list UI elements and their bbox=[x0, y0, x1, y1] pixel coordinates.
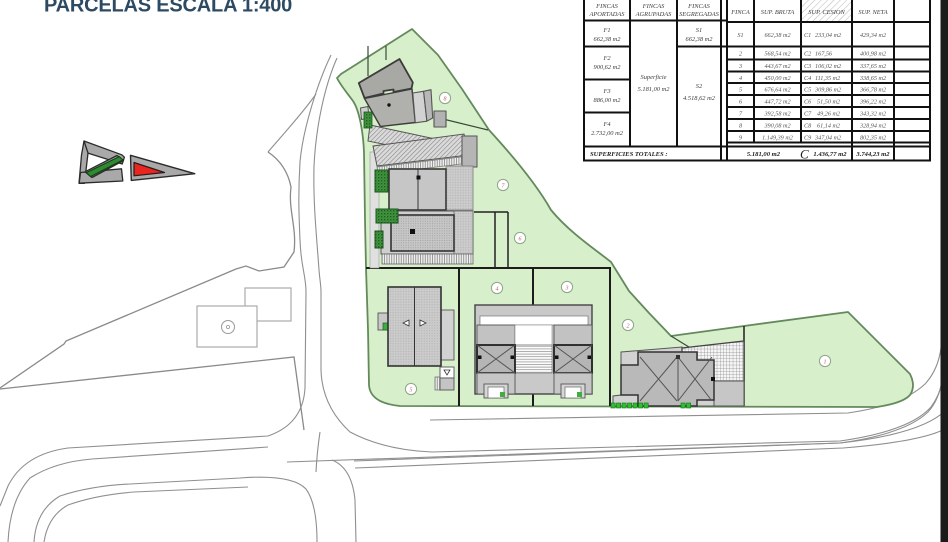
svg-text:337,65 m2: 337,65 m2 bbox=[859, 63, 886, 70]
svg-text:347,04 m2: 347,04 m2 bbox=[814, 135, 841, 142]
svg-text:106,02 m2: 106,02 m2 bbox=[815, 63, 841, 70]
svg-text:S1: S1 bbox=[696, 27, 702, 34]
svg-text:4.518,62 m2: 4.518,62 m2 bbox=[683, 95, 716, 102]
svg-text:C2: C2 bbox=[804, 51, 811, 58]
svg-text:568,54 m2: 568,54 m2 bbox=[764, 51, 790, 58]
svg-text:1.436,77 m2: 1.436,77 m2 bbox=[813, 151, 847, 158]
svg-text:9: 9 bbox=[739, 135, 742, 142]
svg-text:5: 5 bbox=[410, 388, 413, 394]
svg-text:FINCA: FINCA bbox=[730, 9, 750, 16]
svg-text:C7: C7 bbox=[804, 111, 812, 118]
svg-text:AGRUPADAS: AGRUPADAS bbox=[635, 11, 673, 18]
svg-text:FINCAS: FINCAS bbox=[595, 3, 618, 10]
svg-text:443,67 m2: 443,67 m2 bbox=[764, 63, 790, 70]
svg-text:PARCELAS ESCALA 1:400: PARCELAS ESCALA 1:400 bbox=[44, 0, 292, 17]
svg-text:802,35 m2: 802,35 m2 bbox=[860, 135, 886, 142]
svg-text:F4: F4 bbox=[602, 121, 611, 128]
svg-text:C8: C8 bbox=[804, 123, 812, 130]
svg-text:F3: F3 bbox=[602, 88, 610, 95]
svg-text:FINCAS: FINCAS bbox=[687, 3, 710, 10]
svg-text:C9: C9 bbox=[804, 135, 811, 142]
svg-text:C3: C3 bbox=[804, 63, 811, 70]
svg-text:APORTADAS: APORTADAS bbox=[588, 11, 625, 18]
svg-text:111,35 m2: 111,35 m2 bbox=[815, 75, 840, 82]
svg-text:C1: C1 bbox=[804, 32, 811, 39]
svg-text:F1: F1 bbox=[602, 27, 610, 34]
svg-text:49,26 m2: 49,26 m2 bbox=[817, 111, 840, 118]
svg-text:4: 4 bbox=[739, 75, 742, 82]
svg-text:396,22 m2: 396,22 m2 bbox=[859, 99, 886, 106]
svg-text:662,38 m2: 662,38 m2 bbox=[686, 36, 714, 43]
svg-text:FINCAS: FINCAS bbox=[642, 3, 665, 10]
svg-text:Superficie: Superficie bbox=[641, 74, 667, 81]
svg-text:5.181,00 m2: 5.181,00 m2 bbox=[747, 151, 781, 158]
svg-text:S2: S2 bbox=[696, 83, 703, 90]
svg-text:328,94 m2: 328,94 m2 bbox=[859, 123, 886, 130]
svg-text:662,38 m2: 662,38 m2 bbox=[594, 36, 622, 43]
svg-text:1: 1 bbox=[824, 360, 827, 366]
svg-text:676,64 m2: 676,64 m2 bbox=[764, 87, 790, 94]
svg-text:392,58 m2: 392,58 m2 bbox=[763, 111, 790, 118]
svg-text:5: 5 bbox=[739, 87, 742, 94]
svg-text:429,34 m2: 429,34 m2 bbox=[860, 32, 886, 39]
svg-text:2.732,00 m2: 2.732,00 m2 bbox=[591, 130, 624, 137]
svg-text:C4: C4 bbox=[804, 75, 811, 82]
svg-text:886,00 m2: 886,00 m2 bbox=[594, 97, 622, 104]
svg-text:6: 6 bbox=[519, 237, 522, 243]
svg-text:167,56: 167,56 bbox=[815, 51, 833, 58]
svg-text:C5: C5 bbox=[804, 87, 811, 94]
svg-text:C: C bbox=[800, 147, 809, 162]
svg-text:233,04 m2: 233,04 m2 bbox=[815, 32, 841, 39]
svg-text:8: 8 bbox=[444, 97, 447, 103]
svg-text:SUP. CESION: SUP. CESION bbox=[808, 9, 845, 16]
svg-text:4: 4 bbox=[496, 286, 499, 293]
svg-text:2: 2 bbox=[627, 324, 630, 330]
svg-text:400,98 m2: 400,98 m2 bbox=[860, 51, 886, 58]
svg-text:5.181,00 m2: 5.181,00 m2 bbox=[638, 86, 671, 93]
svg-text:366,78 m2: 366,78 m2 bbox=[859, 87, 886, 94]
svg-text:51,50 m2: 51,50 m2 bbox=[817, 99, 840, 106]
svg-text:SUP. BRUTA: SUP. BRUTA bbox=[761, 9, 795, 16]
svg-text:SEGREGADAS: SEGREGADAS bbox=[679, 11, 720, 18]
svg-text:SUPERFICIES TOTALES :: SUPERFICIES TOTALES : bbox=[590, 151, 668, 158]
svg-text:338,65 m2: 338,65 m2 bbox=[859, 75, 886, 82]
svg-text:C6: C6 bbox=[804, 99, 812, 106]
svg-text:662,38 m2: 662,38 m2 bbox=[764, 32, 790, 39]
svg-text:3: 3 bbox=[565, 286, 569, 292]
svg-text:61,14 m2: 61,14 m2 bbox=[817, 123, 840, 130]
svg-text:900,62 m2: 900,62 m2 bbox=[594, 64, 622, 71]
svg-text:SUP. NETA: SUP. NETA bbox=[858, 9, 887, 16]
svg-text:3: 3 bbox=[738, 63, 742, 70]
svg-text:447,72 m2: 447,72 m2 bbox=[764, 99, 790, 106]
svg-text:309,86 m2: 309,86 m2 bbox=[814, 87, 841, 94]
svg-text:1.149,39 m2: 1.149,39 m2 bbox=[762, 135, 793, 142]
svg-text:390,08 m2: 390,08 m2 bbox=[763, 123, 790, 130]
svg-text:S1: S1 bbox=[737, 32, 743, 39]
svg-text:2: 2 bbox=[739, 51, 742, 58]
svg-text:F2: F2 bbox=[602, 55, 611, 62]
svg-text:450,00 m2: 450,00 m2 bbox=[764, 75, 790, 82]
svg-text:3.744,23 m2: 3.744,23 m2 bbox=[855, 151, 890, 158]
svg-text:343,32 m2: 343,32 m2 bbox=[859, 111, 886, 118]
